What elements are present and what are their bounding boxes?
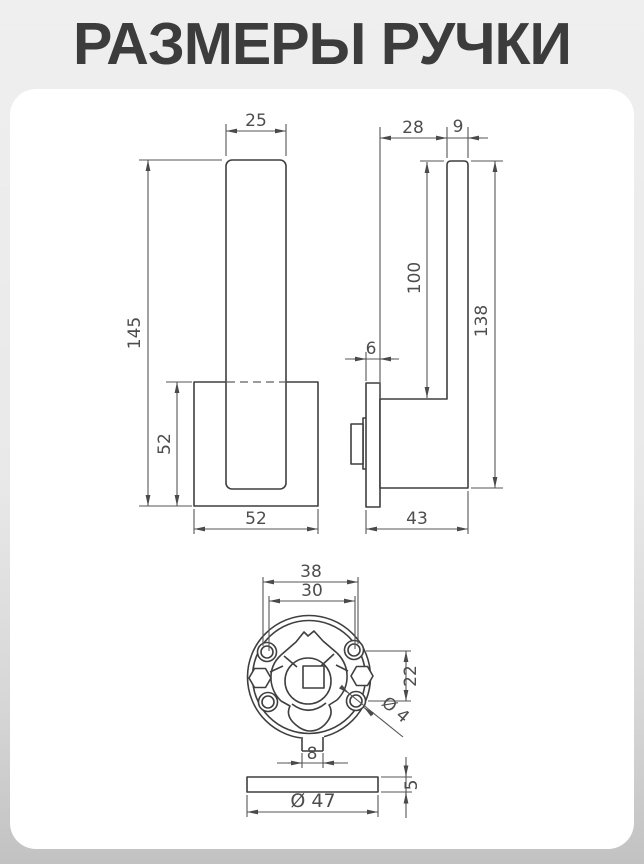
side-boss <box>351 424 363 464</box>
rosette-view: 38 30 22 Ø 4 8 <box>248 562 422 768</box>
svg-text:Ø 4: Ø 4 <box>377 693 413 727</box>
hex-nut <box>249 669 271 688</box>
dim-disc-thickness: 5 <box>381 757 422 818</box>
front-view: 25 145 52 52 <box>125 111 318 534</box>
dim-side-arm-offset: 28 9 <box>380 117 488 399</box>
svg-text:145: 145 <box>125 317 145 349</box>
svg-text:28: 28 <box>402 118 424 138</box>
disc-side-view: Ø 47 5 <box>247 757 422 818</box>
dim-side-plate-thickness: 6 <box>345 339 399 381</box>
svg-text:6: 6 <box>366 339 377 359</box>
svg-text:43: 43 <box>406 509 428 529</box>
svg-text:25: 25 <box>245 111 267 131</box>
svg-text:52: 52 <box>155 433 175 455</box>
dim-rosette-tab-width: 8 <box>277 744 348 768</box>
svg-text:38: 38 <box>300 562 322 582</box>
dim-front-bar-width: 25 <box>226 111 286 156</box>
dim-side-total-depth: 43 <box>366 491 468 534</box>
dim-side-grip-thickness: 9 <box>453 117 464 137</box>
svg-text:Ø 47: Ø 47 <box>290 790 335 812</box>
side-plate <box>366 383 380 507</box>
technical-drawing: 25 145 52 52 <box>0 0 644 864</box>
dim-front-plate-width: 52 <box>194 509 318 534</box>
rosette-cam-mechanism <box>270 631 348 731</box>
svg-text:22: 22 <box>401 665 421 687</box>
svg-text:30: 30 <box>301 581 323 601</box>
rosette-mount-holes <box>249 641 373 712</box>
dim-side-total-height: 138 <box>471 161 503 488</box>
dim-side-grip-length: 100 <box>405 161 444 398</box>
square-spindle-hole <box>303 666 324 688</box>
hex-nut <box>351 667 373 686</box>
svg-text:138: 138 <box>472 305 492 337</box>
side-view: 28 9 100 138 6 43 <box>345 117 503 534</box>
svg-text:8: 8 <box>307 744 318 764</box>
svg-text:100: 100 <box>405 262 425 294</box>
svg-text:52: 52 <box>245 509 267 529</box>
dim-front-plate-height: 52 <box>155 382 192 506</box>
front-handle-bar <box>226 160 286 489</box>
dim-rosette-hole-pitch: 22 <box>366 651 421 701</box>
svg-text:5: 5 <box>402 780 422 791</box>
side-grip <box>380 161 468 488</box>
dim-disc-diameter: Ø 47 <box>247 790 378 817</box>
